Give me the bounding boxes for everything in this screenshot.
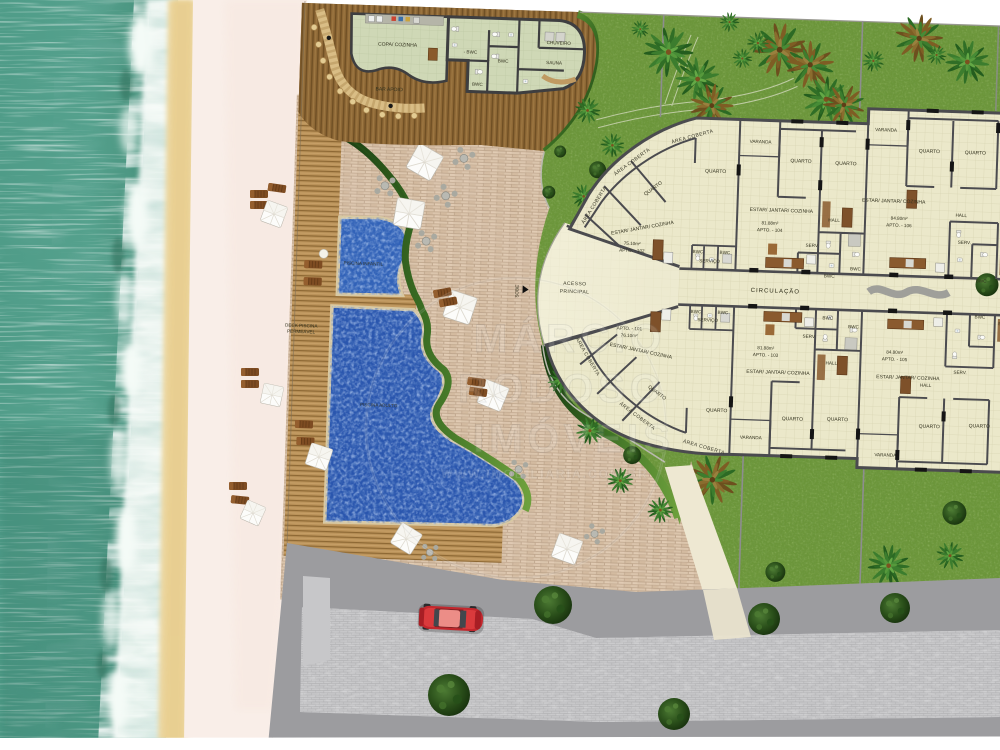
svg-text:VARANDA: VARANDA — [874, 452, 897, 458]
svg-text:RODOSO: RODOSO — [458, 367, 666, 411]
svg-text:CHUVEIRO: CHUVEIRO — [547, 40, 572, 46]
svg-text:HALL: HALL — [825, 360, 837, 365]
svg-text:QUARTO: QUARTO — [919, 424, 941, 431]
svg-text:SERV.: SERV. — [802, 334, 816, 339]
svg-text:BWC: BWC — [848, 324, 860, 329]
svg-text:84.80m²: 84.80m² — [886, 349, 903, 355]
svg-text:84.80m²: 84.80m² — [891, 216, 908, 222]
svg-text:BWC: BWC — [976, 278, 988, 283]
svg-text:SERVIÇO: SERVIÇO — [697, 317, 718, 323]
svg-text:BWC: BWC — [498, 58, 510, 63]
svg-text:QUARTO: QUARTO — [782, 416, 804, 423]
svg-text:75.10m²: 75.10m² — [624, 241, 641, 247]
svg-text:BWC: BWC — [691, 309, 703, 314]
svg-text:SERV.: SERV. — [953, 370, 967, 375]
svg-text:VARANDA: VARANDA — [875, 127, 898, 133]
svg-text:HALL: HALL — [920, 383, 932, 388]
svg-text:BWC: BWC — [824, 273, 836, 278]
svg-text:- BWC: - BWC — [464, 49, 478, 54]
svg-text:81.88m²: 81.88m² — [757, 345, 774, 351]
svg-text:APTO. - 102: APTO. - 102 — [619, 248, 645, 254]
svg-text:QUARTO: QUARTO — [969, 423, 991, 430]
svg-text:QUARTO: QUARTO — [919, 148, 941, 155]
svg-text:SAUNA: SAUNA — [546, 60, 563, 66]
svg-text:QUARTO: QUARTO — [705, 168, 727, 175]
svg-text:BAR APOIO: BAR APOIO — [375, 86, 403, 93]
svg-text:APTO. - 104: APTO. - 104 — [757, 227, 783, 233]
svg-text:SERVIÇO: SERVIÇO — [699, 258, 720, 264]
svg-text:WWW.IMOBILIARIA.COM.BR: WWW.IMOBILIARIA.COM.BR — [441, 467, 648, 481]
svg-text:SOBE: SOBE — [514, 285, 519, 298]
svg-text:QUARTO: QUARTO — [706, 408, 728, 415]
svg-text:BWC: BWC — [717, 310, 729, 315]
svg-text:HALL: HALL — [828, 217, 840, 222]
svg-text:APTO. - 105: APTO. - 105 — [882, 356, 908, 362]
svg-text:BWC: BWC — [472, 82, 484, 87]
svg-text:IMÓVEIS: IMÓVEIS — [473, 415, 675, 461]
svg-text:QUARTO: QUARTO — [965, 150, 987, 157]
svg-text:HALL: HALL — [955, 213, 967, 218]
svg-text:BWC: BWC — [719, 250, 731, 255]
svg-text:QUARTO: QUARTO — [790, 158, 812, 165]
svg-text:BWC: BWC — [822, 315, 834, 320]
svg-text:QUARTO: QUARTO — [835, 161, 857, 168]
svg-text:APTO. - 106: APTO. - 106 — [886, 222, 912, 228]
svg-text:BWC: BWC — [692, 249, 704, 254]
svg-text:PERMEÁVEL: PERMEÁVEL — [287, 328, 316, 335]
svg-text:SERV.: SERV. — [958, 240, 972, 245]
svg-text:MÁRCIO: MÁRCIO — [474, 316, 666, 361]
svg-text:VARANDA: VARANDA — [750, 139, 773, 145]
svg-text:81.88m²: 81.88m² — [761, 220, 778, 226]
svg-text:VARANDA: VARANDA — [740, 435, 763, 441]
svg-text:APTO. - 103: APTO. - 103 — [753, 352, 779, 358]
svg-text:QUARTO: QUARTO — [827, 417, 849, 424]
svg-text:BWC: BWC — [850, 266, 862, 271]
svg-text:BWC: BWC — [974, 314, 986, 319]
svg-text:SERV.: SERV. — [805, 243, 819, 248]
